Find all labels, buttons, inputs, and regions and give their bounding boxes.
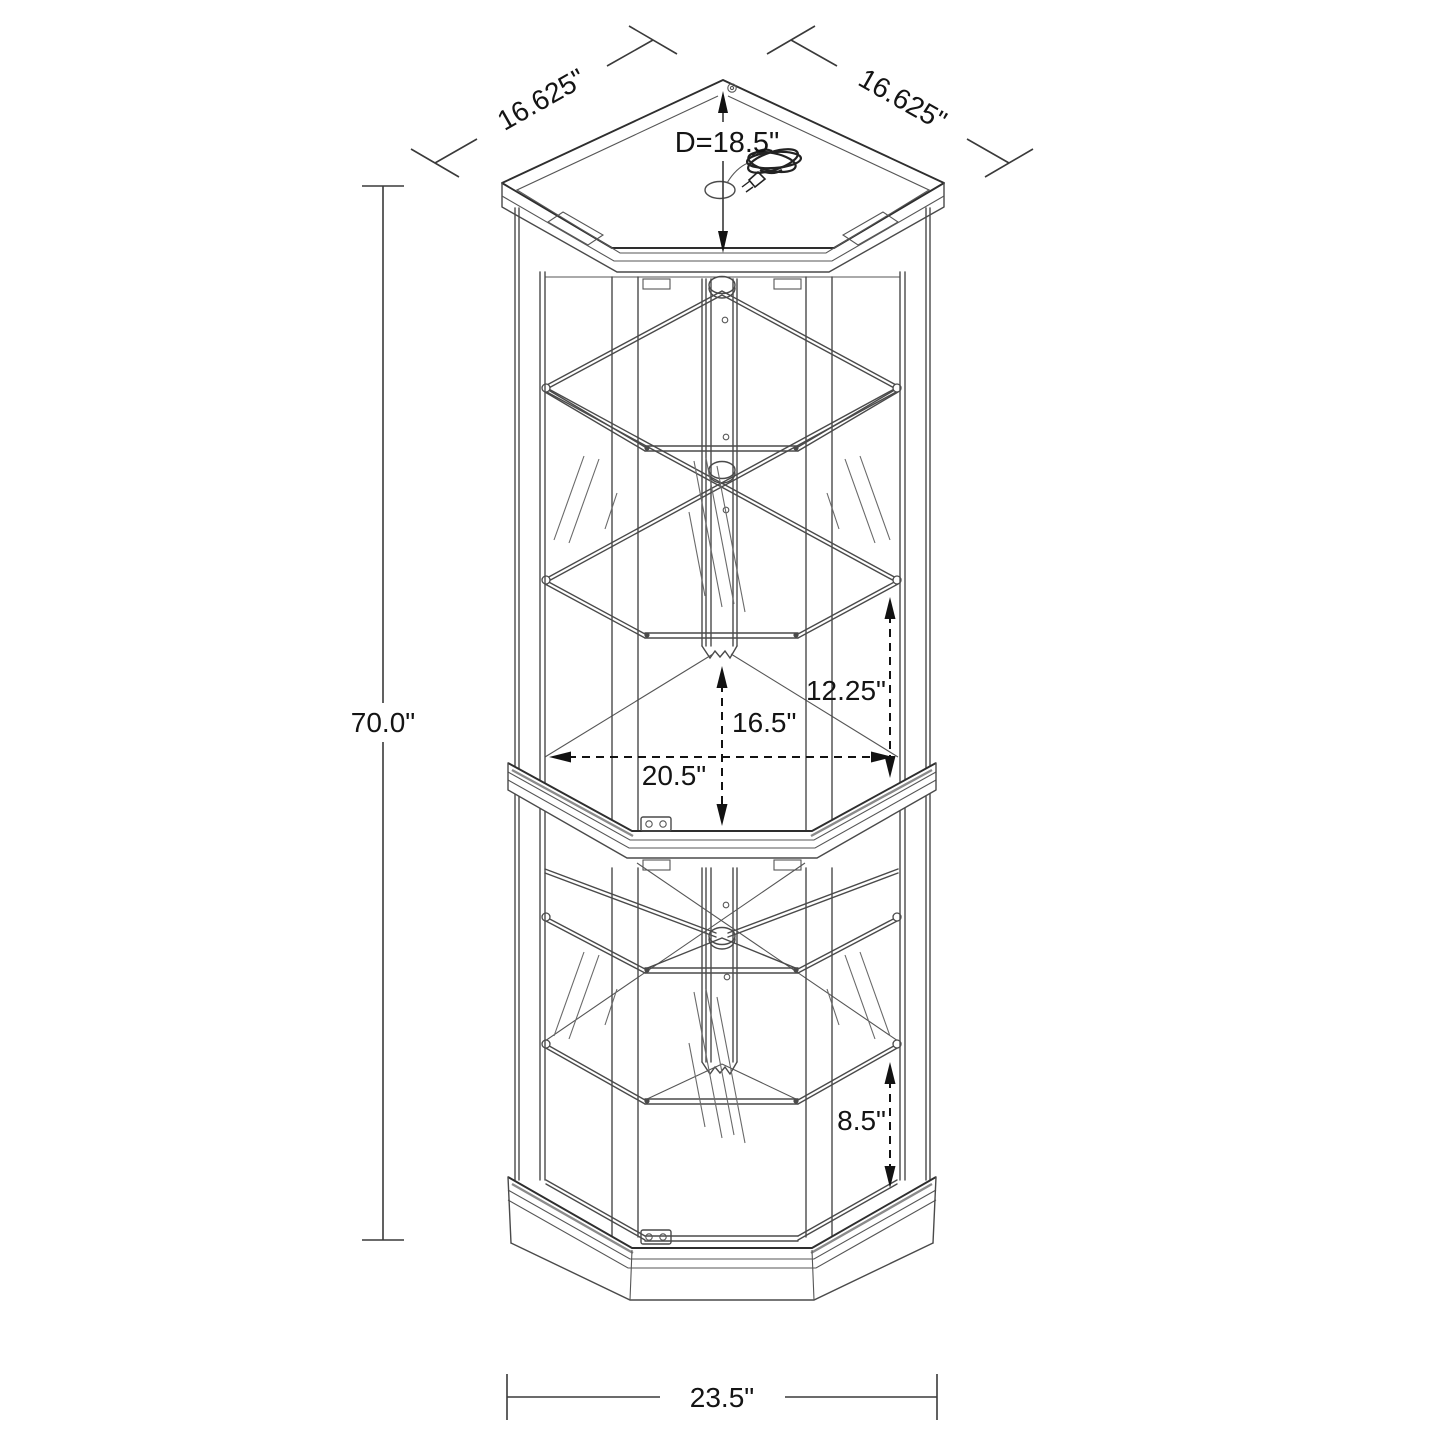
cabinet-dimension-drawing: 70.0" 23.5" 16.625" 16.625" D=18.5" 20.5… <box>0 0 1445 1445</box>
upper-center-clearance-label: 16.5" <box>732 707 796 738</box>
dimension-overall-height: 70.0" <box>351 186 415 1240</box>
lower-side-clearance-label: 8.5" <box>837 1105 886 1136</box>
top-depth-label: D=18.5" <box>675 127 780 159</box>
lower-interior <box>542 863 901 1241</box>
top-right-edge-label: 16.625" <box>854 62 952 136</box>
lower-door-hinge <box>641 1230 671 1244</box>
dimension-base-width: 23.5" <box>507 1374 937 1420</box>
base-width-label: 23.5" <box>690 1382 754 1413</box>
lower-door-frame <box>612 860 832 1237</box>
dimension-lower-side-clearance: 8.5" <box>837 1062 895 1188</box>
upper-door-hinge <box>641 817 671 831</box>
overall-height-label: 70.0" <box>351 707 415 738</box>
upper-door-frame <box>612 277 832 835</box>
dimension-drawing-page: 70.0" 23.5" 16.625" 16.625" D=18.5" 20.5… <box>0 0 1445 1445</box>
interior-width-label: 20.5" <box>642 760 706 791</box>
dimension-upper-side-clearance: 12.25" <box>806 597 896 778</box>
upper-side-clearance-label: 12.25" <box>806 675 886 706</box>
dimension-upper-center-clearance: 16.5" <box>717 666 797 826</box>
top-left-edge-label: 16.625" <box>492 62 590 136</box>
upper-mid-light-fixture <box>709 462 735 484</box>
